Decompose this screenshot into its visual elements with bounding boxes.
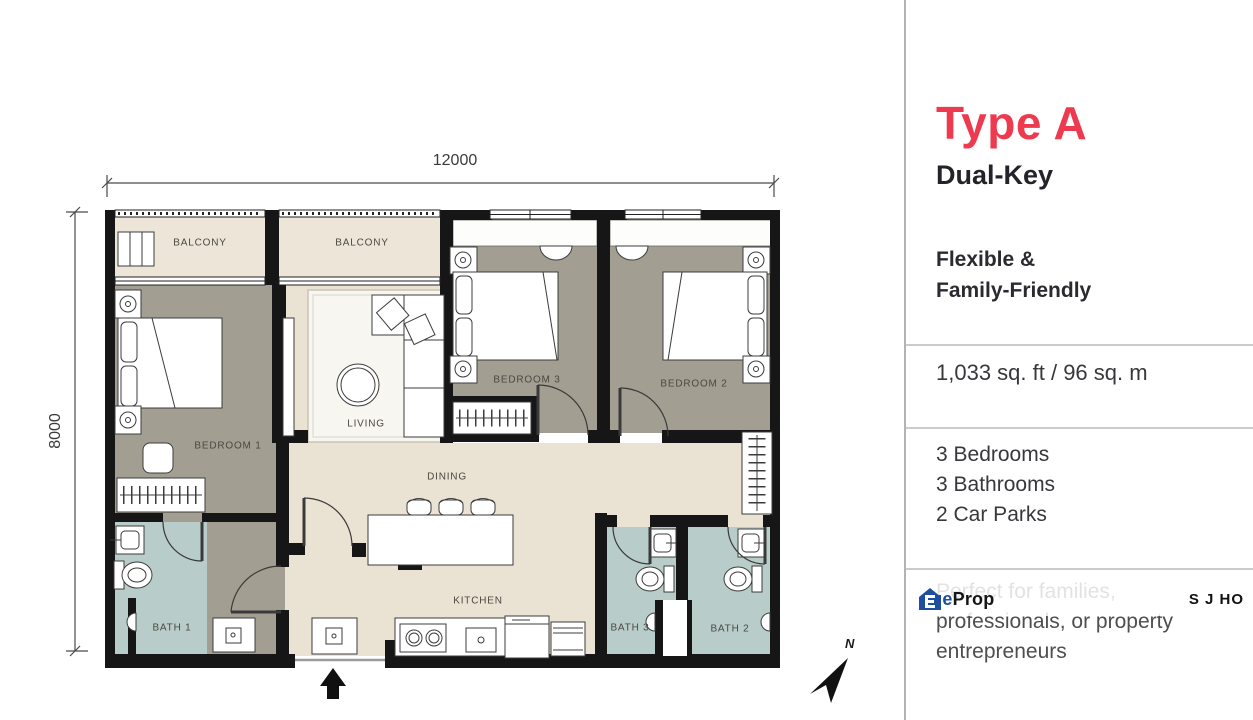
- north-label: N: [845, 636, 854, 651]
- tagline-line-2: Family-Friendly: [936, 275, 1091, 306]
- feature-bedrooms: 3 Bedrooms: [936, 440, 1055, 470]
- divider: [906, 427, 1253, 429]
- info-panel: Type A Dual-Key Flexible & Family-Friend…: [904, 0, 1253, 720]
- divider: [906, 568, 1253, 570]
- tagline-line-1: Flexible &: [936, 244, 1091, 275]
- room-label-bath-3: BATH 3: [610, 623, 649, 634]
- dimension-height-label: 8000: [47, 413, 65, 449]
- divider: [906, 344, 1253, 346]
- room-label-bedroom-3: BEDROOM 3: [493, 375, 560, 386]
- agent-initials: S J HO: [1189, 591, 1244, 608]
- tagline: Flexible & Family-Friendly: [936, 244, 1091, 306]
- dimension-width-label: 12000: [433, 152, 478, 170]
- edgeprop-house-icon: [918, 587, 942, 611]
- description-line-3: entrepreneurs: [936, 637, 1173, 667]
- kitchen-furniture: [395, 616, 585, 658]
- feature-list: 3 Bedrooms 3 Bathrooms 2 Car Parks: [936, 440, 1055, 530]
- room-label-bedroom-1: BEDROOM 1: [194, 441, 261, 452]
- entrance-arrow-icon: [320, 668, 346, 699]
- room-label-balcony-2: BALCONY: [335, 238, 388, 249]
- edgeprop-logo: dgeProp: [918, 587, 994, 611]
- logo-text-dark: Prop: [953, 589, 995, 609]
- room-label-dining: DINING: [427, 472, 467, 483]
- room-label-bedroom-2: BEDROOM 2: [660, 379, 727, 390]
- unit-type-title: Type A: [936, 96, 1087, 150]
- unit-subtitle: Dual-Key: [936, 160, 1053, 191]
- north-arrow-icon: [810, 658, 848, 703]
- room-label-living: LIVING: [347, 419, 385, 430]
- feature-carparks: 2 Car Parks: [936, 500, 1055, 530]
- room-label-balcony-1: BALCONY: [173, 238, 226, 249]
- floorplan-page: BALCONY BALCONY BEDROOM 1 BEDROOM 3 BEDR…: [0, 0, 1253, 720]
- room-label-kitchen: KITCHEN: [453, 596, 503, 607]
- room-label-bath-2: BATH 2: [710, 624, 749, 635]
- service-shaft: [663, 600, 687, 656]
- room-label-bath-1: BATH 1: [152, 623, 191, 634]
- unit-area: 1,033 sq. ft / 96 sq. m: [936, 360, 1148, 386]
- feature-bathrooms: 3 Bathrooms: [936, 470, 1055, 500]
